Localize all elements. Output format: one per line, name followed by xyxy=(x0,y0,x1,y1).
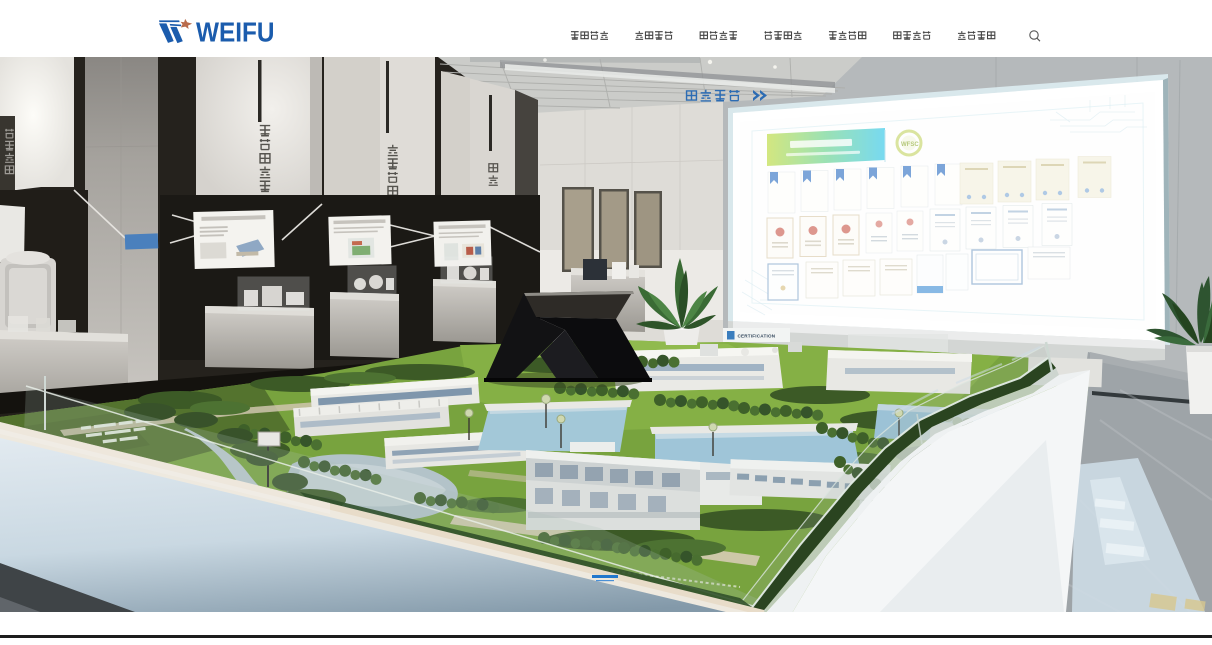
svg-text:CERTIFICATION: CERTIFICATION xyxy=(738,334,776,339)
svg-text:WEIFU: WEIFU xyxy=(196,17,275,48)
